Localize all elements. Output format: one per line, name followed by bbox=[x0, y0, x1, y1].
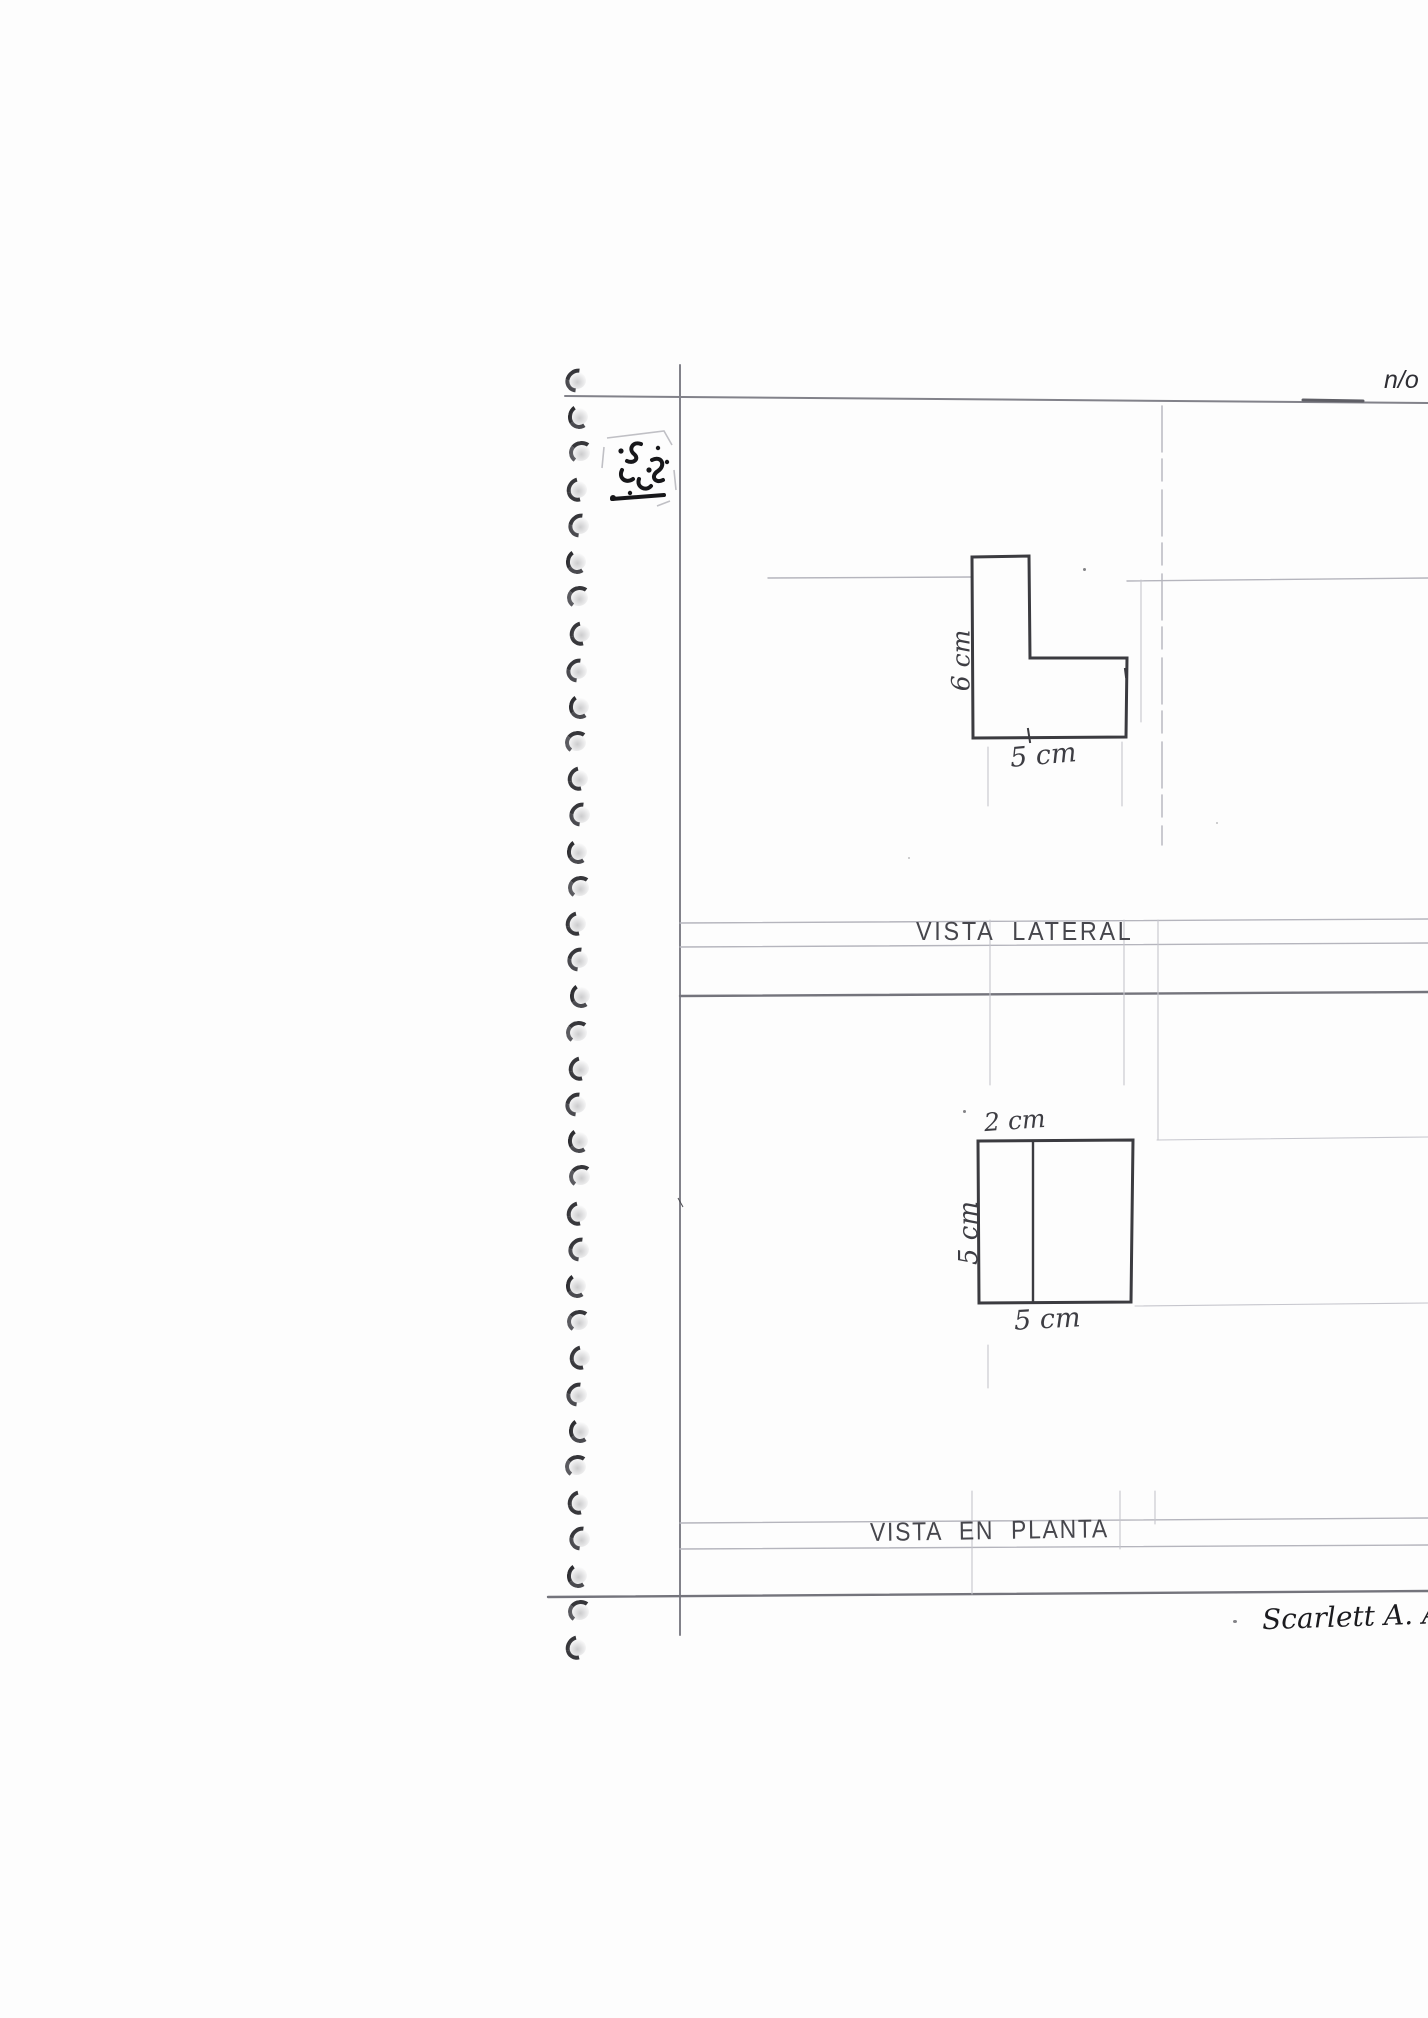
drawing-layer bbox=[0, 0, 1428, 2018]
scan-speck bbox=[1083, 568, 1086, 571]
lateral-view-shape bbox=[972, 556, 1127, 742]
l-shape-outline bbox=[972, 556, 1127, 738]
guide-horizontal-left bbox=[768, 577, 972, 578]
stamp-dot-2 bbox=[656, 446, 660, 450]
stamp-stroke-2 bbox=[652, 459, 663, 481]
plan-view-shape bbox=[978, 1140, 1133, 1303]
lateral-width-dimension-label: 5 cm bbox=[1009, 737, 1078, 774]
stamp-stroke-4 bbox=[638, 479, 651, 489]
scan-speck bbox=[1216, 822, 1218, 824]
stamp-dot-4 bbox=[628, 491, 632, 495]
guide-horizontal-square-bottom bbox=[1135, 1303, 1428, 1306]
guide-horizontal-right bbox=[1127, 578, 1428, 581]
stamp-stroke-1 bbox=[627, 443, 641, 462]
scanned-notebook-page: n/o 6 cm 5 cm VISTA LATERAL 2 cm 5 cm 5 … bbox=[0, 0, 1428, 2018]
stamp-underline-blob bbox=[610, 495, 616, 501]
plan-top-dimension-label: 2 cm bbox=[983, 1104, 1046, 1137]
scan-speck bbox=[963, 1110, 966, 1113]
l-shape-right-tick bbox=[1125, 669, 1126, 677]
guide-horizontal-square-top bbox=[1157, 1137, 1428, 1140]
stamp-underline bbox=[612, 495, 664, 499]
student-signature: Scarlett A. Al bbox=[1261, 1597, 1428, 1637]
stamp-stroke-3 bbox=[621, 470, 633, 481]
square-outline bbox=[978, 1140, 1133, 1303]
construction-guide-lines bbox=[678, 406, 1428, 1594]
lateral-height-dimension-label: 6 cm bbox=[946, 630, 975, 692]
page-corner-note: n/o bbox=[1384, 366, 1419, 395]
top-rule-line bbox=[565, 396, 1428, 403]
plan-view-caption: VISTA EN PLANTA bbox=[870, 1513, 1109, 1548]
scan-speck bbox=[908, 857, 910, 859]
stamp-dot-5 bbox=[646, 467, 651, 472]
top-rule-dark-segment bbox=[1303, 400, 1363, 401]
plan-side-dimension-label: 5 cm bbox=[954, 1201, 984, 1265]
scan-speck bbox=[1233, 1620, 1237, 1623]
stamp-dot-3 bbox=[665, 460, 669, 464]
caption2-band-line-bottom bbox=[680, 1545, 1428, 1549]
lateral-view-caption: VISTA LATERAL bbox=[916, 916, 1134, 947]
stamp-dot-1 bbox=[618, 448, 623, 453]
section-divider-line bbox=[680, 992, 1428, 996]
ink-scribble-stamp bbox=[602, 431, 676, 506]
plan-bottom-dimension-label: 5 cm bbox=[1013, 1302, 1081, 1336]
